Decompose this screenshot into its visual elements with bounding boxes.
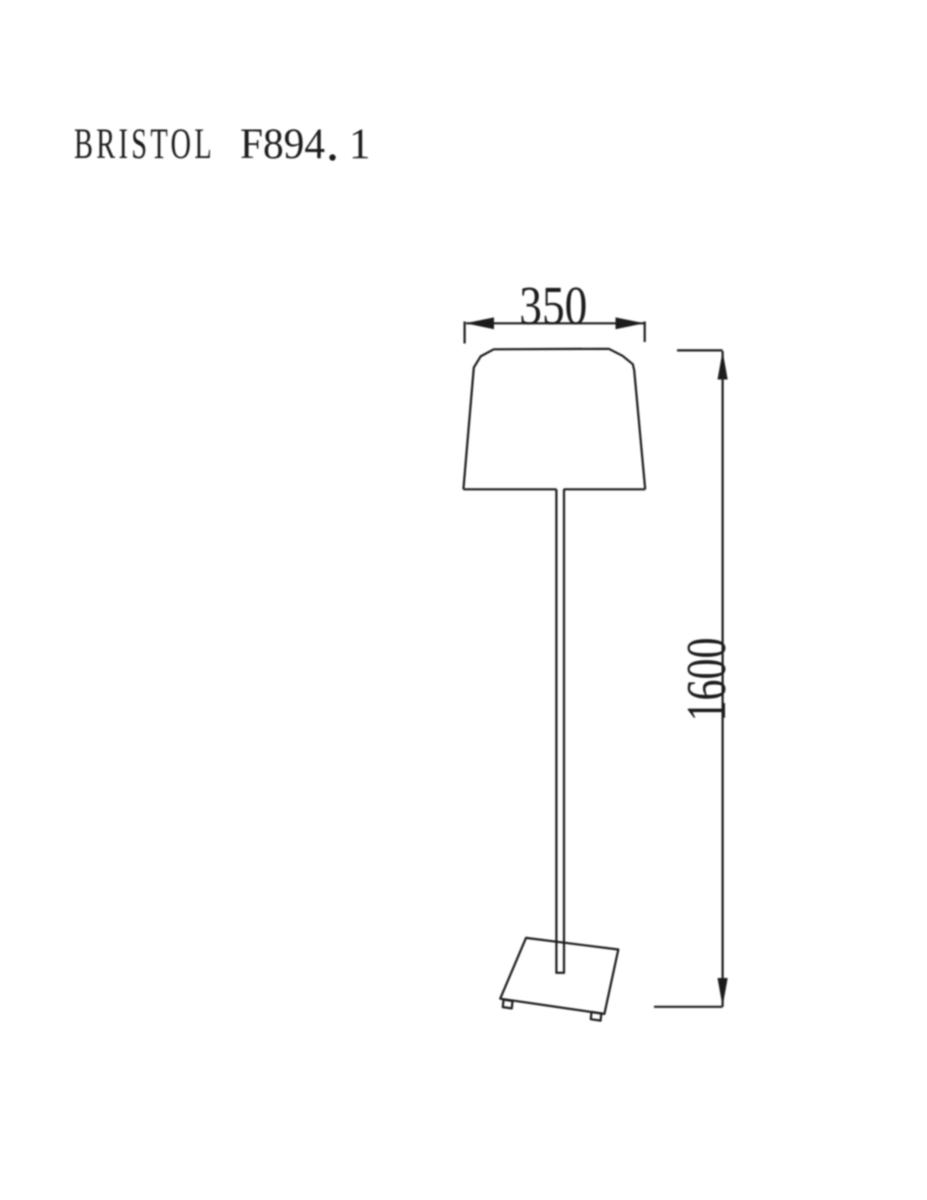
svg-text:BRISTOL: BRISTOL: [74, 121, 215, 168]
svg-text:1600: 1600: [676, 638, 738, 722]
svg-text:F894: F894: [240, 121, 325, 168]
svg-text:1: 1: [349, 121, 371, 168]
svg-text:350: 350: [519, 275, 587, 336]
